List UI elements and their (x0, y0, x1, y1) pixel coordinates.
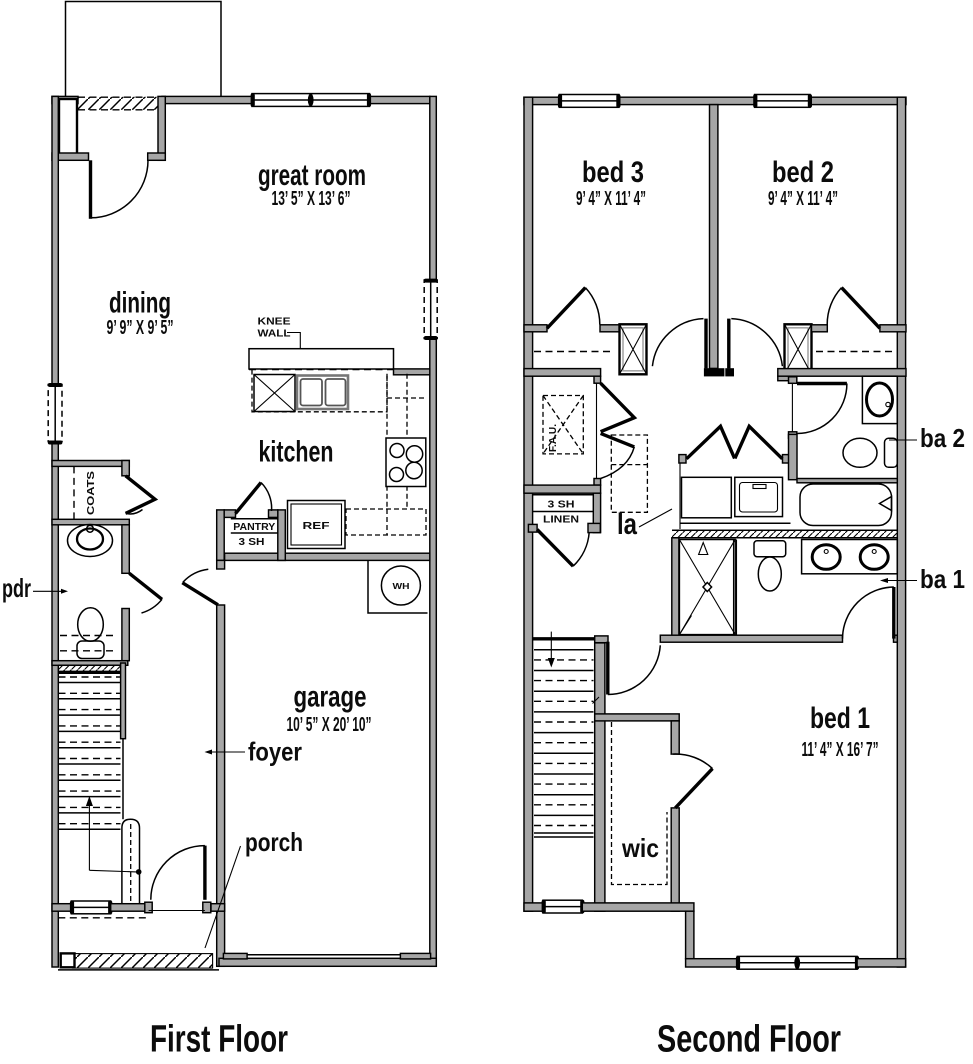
svg-text:bed 1: bed 1 (810, 702, 870, 735)
svg-text:bed 2: bed 2 (772, 156, 834, 189)
svg-text:F.A.U.: F.A.U. (548, 424, 559, 452)
svg-text:COATS: COATS (86, 471, 97, 515)
svg-text:wic: wic (621, 833, 659, 863)
svg-text:LINEN: LINEN (543, 515, 579, 526)
svg-text:First Floor: First Floor (150, 1019, 288, 1061)
svg-text:porch: porch (245, 827, 303, 857)
svg-text:kitchen: kitchen (259, 436, 334, 469)
svg-text:9’ 9” X 9’ 5”: 9’ 9” X 9’ 5” (107, 317, 174, 339)
svg-text:13’ 5” X 13’ 6”: 13’ 5” X 13’ 6” (272, 188, 351, 210)
svg-text:WALL: WALL (258, 328, 291, 339)
svg-text:WH: WH (393, 581, 410, 591)
svg-text:PANTRY: PANTRY (233, 522, 275, 533)
svg-text:ba 1: ba 1 (920, 564, 965, 594)
svg-text:10’ 5” X 20’ 10”: 10’ 5” X 20’ 10” (287, 714, 372, 736)
svg-text:9’ 4” X 11’ 4”: 9’ 4” X 11’ 4” (576, 188, 646, 210)
svg-text:dining: dining (109, 287, 171, 320)
svg-text:ba 2: ba 2 (920, 423, 965, 453)
svg-text:3 SH: 3 SH (548, 500, 575, 511)
svg-text:foyer: foyer (248, 737, 302, 767)
svg-text:bed 3: bed 3 (582, 156, 644, 189)
svg-text:KNEE: KNEE (258, 317, 291, 328)
svg-text:Second Floor: Second Floor (657, 1019, 841, 1061)
svg-text:11’ 4” X 16’ 7”: 11’ 4” X 16’ 7” (802, 739, 879, 761)
svg-text:great room: great room (258, 159, 366, 192)
svg-text:REF: REF (303, 521, 330, 532)
svg-text:garage: garage (294, 681, 367, 714)
svg-text:9’ 4” X 11’ 4”: 9’ 4” X 11’ 4” (768, 188, 838, 210)
svg-text:3 SH: 3 SH (239, 537, 265, 548)
svg-text:la: la (617, 508, 637, 541)
svg-text:pdr: pdr (2, 573, 31, 603)
